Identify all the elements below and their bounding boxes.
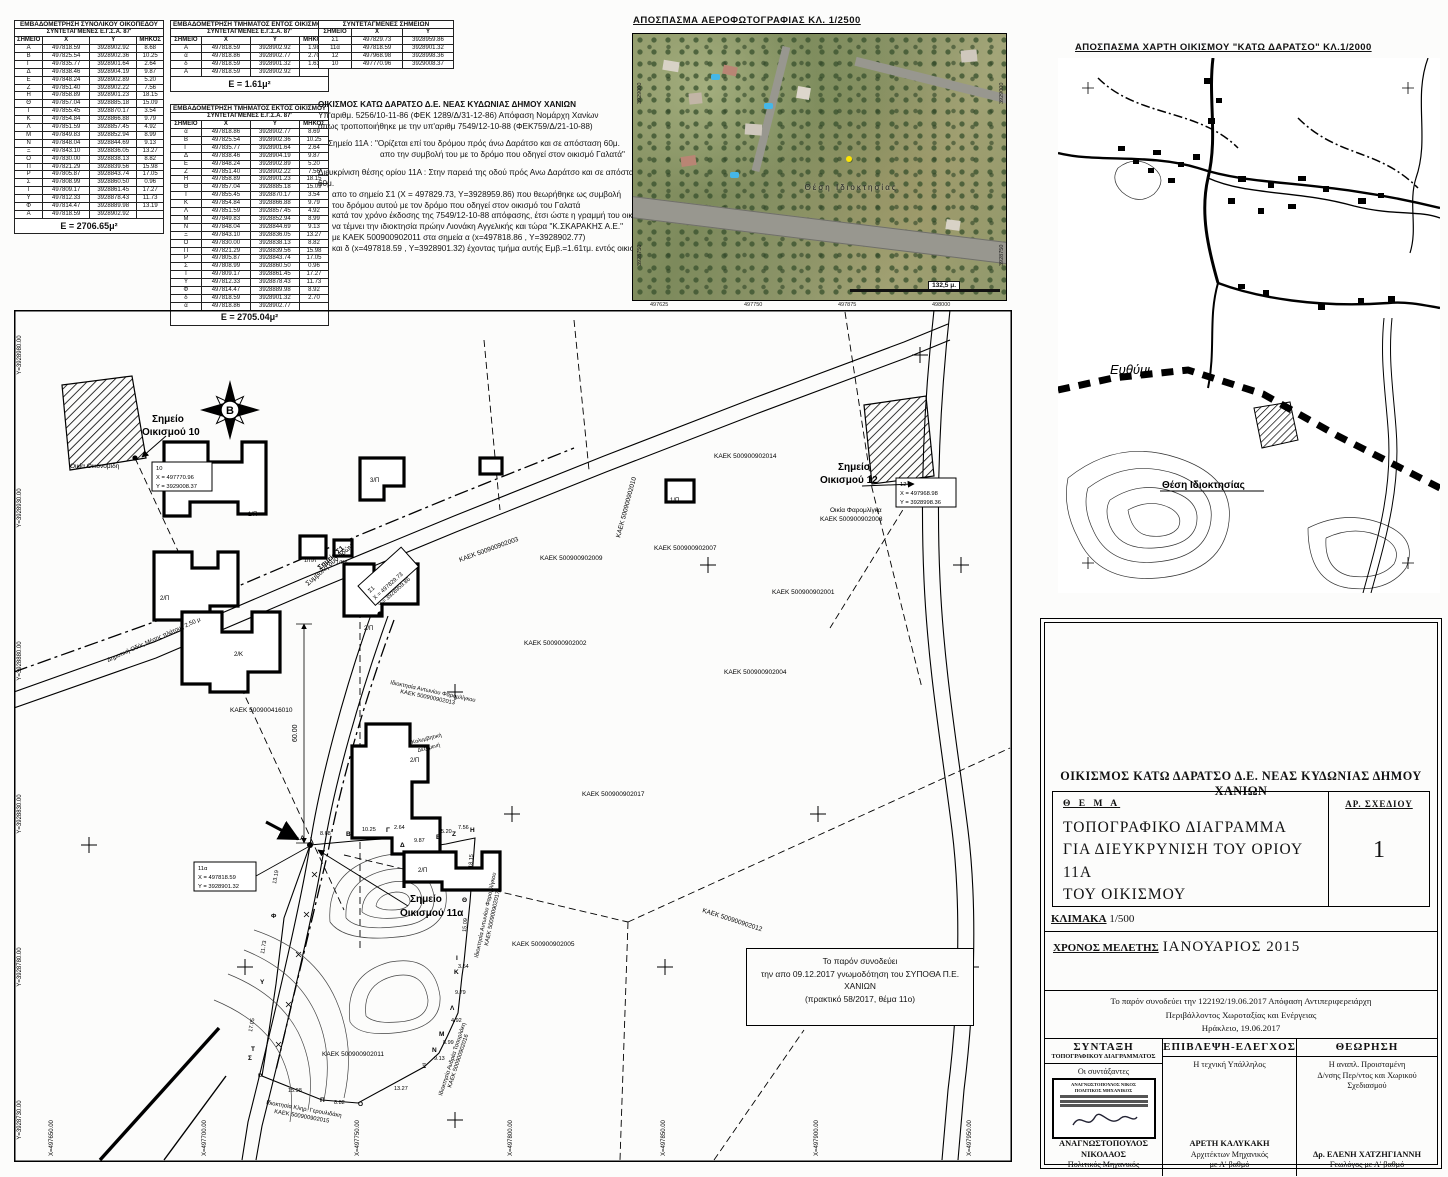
building	[961, 49, 978, 62]
kaek-label: ΚΑΕΚ 500900902004	[724, 669, 787, 676]
sig-title: Γεωλόγος με Α' βαθμό	[1313, 1160, 1421, 1171]
table-row: Α497818.593928902.921.98	[171, 45, 329, 53]
grid-y-label: Y=3928880.00	[17, 641, 23, 681]
table-row: Υ497812.333928878.4311.73	[171, 279, 329, 287]
note-line: την απο 09.12.2017 γνωμοδότηση του ΣΥΠΟΘ…	[747, 968, 973, 981]
table-row: Ν497848.043928844.699.13	[15, 139, 164, 147]
vertex-label: Ξ	[422, 1063, 426, 1070]
table-cell: 3928870.17	[250, 192, 299, 200]
grid-x-label: X=497750.00	[355, 1119, 361, 1156]
table-cell: 2.70	[299, 294, 328, 302]
table-cell: 8.68	[137, 45, 164, 53]
table-cell: 497770.96	[352, 60, 403, 68]
table-cell: Κ	[15, 116, 43, 124]
col-header: ΣΗΜΕΙΟ	[171, 37, 202, 45]
table-cell: 3928844.69	[90, 139, 137, 147]
col-header: ΣΗΜΕΙΟ	[15, 37, 43, 45]
table-cell: Γ	[171, 144, 202, 152]
storeys-label: 1/Π	[248, 512, 257, 518]
photo-coord: 3928750	[999, 245, 1005, 266]
table-subtitle: ΣΥΝΤΕΤΑΓΜΕΝΕΣ Ε.Γ.Σ.Α. 87'	[15, 29, 164, 37]
storeys-label: 2/Π	[410, 758, 419, 764]
vertex-label: Μ	[439, 1031, 444, 1038]
table-cell: 497851.59	[201, 208, 250, 216]
point12-label: Σημείο	[838, 462, 870, 473]
table-cell: Β	[15, 53, 43, 61]
table-row: Σ1497829.733928959.86	[319, 37, 454, 45]
title-block-inner: ΟΙΚΙΣΜΟΣ ΚΑΤΩ ΔΑΡΑΤΣΟ Δ.Ε. ΝΕΑΣ ΚΥΔΩΝΙΑΣ…	[1044, 622, 1438, 1165]
distance-label: 3.54	[458, 964, 469, 970]
grid-y-label: Y=3928930.00	[17, 488, 23, 528]
title-block: ΟΙΚΙΣΜΟΣ ΚΑΤΩ ΔΑΡΑΤΣΟ Δ.Ε. ΝΕΑΣ ΚΥΔΩΝΙΑΣ…	[1040, 618, 1442, 1169]
table-cell: 497855.45	[201, 192, 250, 200]
point12-box-text: X = 497968.98	[900, 491, 938, 497]
table-cell: Ε	[15, 76, 43, 84]
table-cell: 15.98	[137, 163, 164, 171]
grid-x-label: X=497700.00	[202, 1119, 208, 1156]
table-row: α497818.863928902.778.69	[171, 129, 329, 137]
building	[946, 219, 961, 231]
table-cell: 3929008.37	[403, 60, 454, 68]
table-cell: Π	[171, 247, 202, 255]
table-cell: 3928901.23	[250, 176, 299, 184]
distance-label: 9.87	[414, 838, 425, 844]
table-cell	[299, 68, 328, 76]
village-label: Ευθύμι	[1110, 362, 1150, 377]
distance-label: 8.68	[320, 831, 331, 837]
point10-box-text: Y = 3929008.37	[156, 484, 197, 490]
table-cell: 3928878.43	[90, 195, 137, 203]
distance-label: 2.64	[394, 825, 405, 831]
table-cell: 497809.17	[201, 271, 250, 279]
table-row: Ξ497843.103928836.0513.27	[171, 231, 329, 239]
table-cell	[137, 210, 164, 218]
table-cell: Ι	[171, 192, 202, 200]
table-cell: 497830.00	[201, 239, 250, 247]
sig-name: Δρ. ΕΛΕΝΗ ΧΑΤΖΗΓΙΑΝΝΗ	[1313, 1150, 1421, 1161]
table-cell: Θ	[171, 184, 202, 192]
note-line: (πρακτικό 58/2017, θέμα 11ο)	[747, 993, 973, 1006]
table-cell: 3928838.13	[250, 239, 299, 247]
table-cell: Ρ	[15, 171, 43, 179]
sig-header: ΣΥΝΤΑΞΗ	[1045, 1041, 1162, 1053]
accompany-box: Το παρόν συνοδεύει την 122192/19.06.2017…	[1045, 991, 1437, 1039]
table-cell: Ν	[15, 139, 43, 147]
table-cell: Ν	[171, 223, 202, 231]
sig-title: Πολιτικός Μηχανικός	[1047, 1160, 1160, 1171]
table-row: Β497825.543928902.3610.25	[171, 137, 329, 145]
distance-label: 13.19	[272, 870, 280, 885]
grid-x-label: X=497800.00	[508, 1119, 514, 1156]
kaek-label: ΚΑΕΚ 500900902017	[582, 791, 645, 798]
table-cell	[299, 302, 328, 310]
table-cell: 3928836.05	[250, 231, 299, 239]
vertex-label: Β	[346, 831, 351, 838]
storeys-label: 1/ΚΛ	[336, 560, 348, 566]
point10-label: Οικισμού 10	[142, 427, 200, 438]
table-cell: Ζ	[171, 168, 202, 176]
table-cell: Σ	[15, 179, 43, 187]
table-cell: Δ	[15, 68, 43, 76]
table-cell: 3928843.74	[250, 255, 299, 263]
table-cell: 5.20	[137, 76, 164, 84]
table-row: Υ497812.333928878.4311.73	[15, 195, 164, 203]
table-cell: 497848.24	[201, 160, 250, 168]
table-cell: 497857.04	[43, 100, 90, 108]
thema-main: Θ Ε Μ Α ΤΟΠΟΓΡΑΦΙΚΟ ΔΙΑΓΡΑΜΜΑ ΓΙΑ ΔΙΕΥΚΡ…	[1053, 792, 1329, 906]
table-cell: 3928902.36	[90, 53, 137, 61]
grid-y-label: Y=3928980.00	[17, 335, 23, 375]
table-title: ΕΜΒΑΔΟΜΕΤΡΗΣΗ ΤΜΗΜΑΤΟΣ ΕΝΤΟΣ ΟΙΚΙΣΜΟΥ	[171, 21, 329, 29]
table-row: Θ497857.043928885.1815.09	[171, 184, 329, 192]
distance-label: 8.82	[334, 1100, 345, 1106]
table-cell: 13.27	[137, 147, 164, 155]
table-cell: Α	[171, 68, 202, 76]
table-cell: 497848.04	[201, 223, 250, 231]
drawing-title-line: ΓΙΑ ΔΙΕΥΚΡΥΝΙΣΗ ΤΟΥ ΟΡΙΟΥ 11Α	[1063, 839, 1318, 884]
table-cell: 17.05	[299, 255, 328, 263]
scale-line: ΚΛΙΜΑΚΑ 1/500	[1051, 913, 1134, 925]
table-row: Φ497814.473928889.988.92	[171, 286, 329, 294]
table-cell: 3928902.92	[250, 68, 299, 76]
table-subtitle: ΣΥΝΤΕΤΑΓΜΕΝΕΣ Ε.Γ.Σ.Α. 87'	[171, 113, 329, 121]
table-cell: 497818.59	[201, 45, 250, 53]
table-row: Ρ497805.873928843.7417.05	[15, 171, 164, 179]
settlement-boundary	[14, 448, 574, 1070]
table-cell: 3928901.32	[250, 294, 299, 302]
table-cell: 18.15	[137, 92, 164, 100]
table-total-plot: ΕΜΒΑΔΟΜΕΤΡΗΣΗ ΣΥΝΟΛΙΚΟΥ ΟΙΚΟΠΕΔΟΥ ΣΥΝΤΕΤ…	[14, 20, 164, 234]
table-cell: 3928857.45	[250, 208, 299, 216]
sig-header: ΘΕΩΡΗΣΗ	[1297, 1041, 1437, 1053]
table-body: Σ1497829.733928959.8611α497818.593928901…	[319, 37, 454, 69]
sig-role: Η αναπλ. Προισταμένη	[1317, 1060, 1416, 1071]
table-subtitle: ΣΥΝΤΕΤΑΓΜΕΝΕΣ Ε.Γ.Σ.Α. 87'	[171, 29, 329, 37]
kaek-label: ΚΑΕΚ 500900902009	[540, 555, 603, 562]
table-cell: 2.64	[137, 60, 164, 68]
table-cell: 11α	[319, 45, 352, 53]
table-cell: 3928904.19	[90, 68, 137, 76]
table-row: Κ497854.843928866.889.79	[15, 116, 164, 124]
table-cell: 8.82	[137, 155, 164, 163]
pool	[711, 74, 720, 80]
scale-bar: 132,5 μ.	[850, 280, 1000, 292]
table-cell: 497838.46	[201, 152, 250, 160]
photo-coord: 3928750	[637, 245, 689, 266]
scale-value: 1/500	[1109, 913, 1134, 925]
signature-icon	[1069, 1109, 1139, 1131]
buildings	[154, 442, 694, 890]
north-label: B	[226, 405, 234, 417]
table-cell: 3928861.45	[90, 187, 137, 195]
table-cell: 3928866.88	[250, 200, 299, 208]
thema-box: Θ Ε Μ Α ΤΟΠΟΓΡΑΦΙΚΟ ΔΙΑΓΡΑΜΜΑ ΓΙΑ ΔΙΕΥΚΡ…	[1052, 791, 1430, 907]
table-cell: 3928857.45	[90, 124, 137, 132]
table-cell: δ	[171, 60, 202, 68]
storeys-label: 2/Π	[160, 596, 169, 602]
scale-bar-label: 132,5 μ.	[928, 281, 960, 290]
table-cell: Β	[171, 137, 202, 145]
distance-label: 15.09	[462, 918, 469, 932]
table-cell: Ι	[15, 108, 43, 116]
photo-coord: 498000	[932, 302, 950, 308]
table-cell: 3928889.98	[90, 202, 137, 210]
table-cell: 497821.29	[43, 163, 90, 171]
table-cell: Ε	[171, 160, 202, 168]
table-row: Π497821.293928839.5615.98	[171, 247, 329, 255]
site-plan-drawing: Y=3928980.00Y=3928930.00Y=3928880.00Y=39…	[14, 310, 1012, 1162]
grid-y-label: Y=3928730.00	[17, 1100, 23, 1140]
table-row: Π497821.293928839.5615.98	[15, 163, 164, 171]
site-marker	[846, 156, 852, 162]
table-cell: 3928843.74	[90, 171, 137, 179]
table-cell: 3928901.32	[403, 45, 454, 53]
table-cell: 3928860.50	[90, 179, 137, 187]
kaek-label: ΚΑΕΚ 500900902001	[772, 589, 835, 596]
table-row: δ497818.593928901.322.70	[171, 294, 329, 302]
table-cell: 497805.87	[43, 171, 90, 179]
signature-col-supervision: ΕΠΙΒΛΕΨΗ-ΕΛΕΓΧΟΣ Η τεχνική Υπάλληλος ΑΡΕ…	[1163, 1039, 1297, 1176]
drawing-sheet: ΕΜΒΑΔΟΜΕΤΡΗΣΗ ΣΥΝΟΛΙΚΟΥ ΟΙΚΟΠΕΔΟΥ ΣΥΝΤΕΤ…	[0, 0, 1448, 1177]
drawing-number-value: 1	[1329, 837, 1429, 864]
table-cell: 497808.99	[201, 263, 250, 271]
table-cell: 3928902.89	[250, 160, 299, 168]
stamp-illegible-line	[1060, 1104, 1148, 1107]
table-cell: Ρ	[171, 255, 202, 263]
point11a-box-text: Y = 3928901.32	[198, 884, 239, 890]
table-cell: Υ	[171, 279, 202, 287]
grid-x-label: X=497850.00	[661, 1119, 667, 1156]
point10-box-text: X = 497770.96	[156, 475, 194, 481]
table-cell: 3928839.56	[90, 163, 137, 171]
distance-label: 10.25	[362, 827, 376, 833]
table-cell: Α	[15, 45, 43, 53]
table-row: Α497818.593928902.92	[171, 68, 329, 76]
table-cell: 3928901.64	[90, 60, 137, 68]
col-header: Y	[90, 37, 137, 45]
drawing-number-label: ΑΡ. ΣΧΕΔΙΟΥ	[1329, 799, 1429, 809]
point11a-box-text: 11α	[198, 866, 208, 872]
table-cell: Π	[15, 163, 43, 171]
table-cell: 3928885.18	[250, 184, 299, 192]
table-cell: Α	[15, 210, 43, 218]
table-cell: 497855.45	[43, 108, 90, 116]
kaek-label: ΚΑΕΚ 500900902010	[615, 476, 638, 539]
area-total: E = 2706.65μ²	[15, 218, 164, 233]
stamp-illegible-line	[1060, 1095, 1148, 1098]
point11a-box-text: X = 497818.59	[198, 875, 236, 881]
table-cell: 497835.77	[43, 60, 90, 68]
col-header: Y	[250, 37, 299, 45]
table-outside-settlement: ΕΜΒΑΔΟΜΕΤΡΗΣΗ ΤΜΗΜΑΤΟΣ ΕΚΤΟΣ ΟΙΚΙΣΜΟΥ ΣΥ…	[170, 104, 329, 326]
table-cell: Ξ	[171, 231, 202, 239]
table-cell: 497812.33	[43, 195, 90, 203]
table-cell: 497818.86	[201, 53, 250, 61]
table-cell: Μ	[171, 215, 202, 223]
table-cell: Υ	[15, 195, 43, 203]
point10-box-text: 10	[156, 466, 162, 472]
table-cell: Η	[15, 92, 43, 100]
aerial-panel-title: ΑΠΟΣΠΑΣΜΑ ΑΕΡΟΦΩΤΟΓΡΑΦΙΑΣ ΚΛ. 1/2500	[633, 15, 861, 26]
point10-label: Σημείο	[152, 414, 184, 425]
note-line: ΧΑΝΙΩΝ	[747, 980, 973, 993]
table-row: Γ497835.773928901.642.64	[171, 144, 329, 152]
grid-x-label: X=497900.00	[814, 1119, 820, 1156]
note-line: να τέμνει την ιδιοκτησία πρώην Λιονάκη Α…	[332, 222, 658, 233]
distance-label: 9.13	[434, 1056, 445, 1062]
note-line: του δρόμου αυτού με τον δρόμο που οδηγεί…	[332, 201, 658, 212]
storeys-label: 2/Π	[418, 868, 427, 874]
signature-grid: ΣΥΝΤΑΞΗ ΤΟΠΟΓΡΑΦΙΚΟΥ ΔΙΑΓΡΑΜΜΑΤΟΣ Οι συν…	[1045, 1039, 1437, 1164]
table-row: Σ497808.993928860.500.96	[171, 263, 329, 271]
table-row: Α497818.593928902.928.68	[15, 45, 164, 53]
photo-coord: 3929000	[999, 79, 1005, 104]
table-row: Ε497848.243928902.895.20	[171, 160, 329, 168]
vertex-label: Π	[320, 1097, 325, 1104]
table-cell: 497854.84	[43, 116, 90, 124]
fence-marks	[276, 872, 317, 1047]
table-cell: 3928904.19	[250, 152, 299, 160]
building	[796, 86, 811, 100]
table-cell: 9.79	[137, 116, 164, 124]
table-cell: 3928902.77	[250, 129, 299, 137]
site-label: Θέση Ιδιοκτησίας	[805, 183, 898, 192]
photo-coord: 497750	[744, 302, 762, 308]
table-cell: 497818.59	[201, 68, 250, 76]
note-line: απο το σημείο Σ1 (Χ = 497829.73, Υ=39289…	[332, 190, 658, 201]
kaek-label: ΚΑΕΚ 500900902005	[512, 941, 575, 948]
storeys-label: 1/Π	[670, 498, 679, 504]
table-row: Μ497849.833928852.948.99	[171, 215, 329, 223]
table-row: Ο497830.003928838.138.82	[15, 155, 164, 163]
area-inside: E = 1.61μ²	[171, 76, 329, 91]
vertex-label: Γ	[386, 827, 390, 834]
point12-box-text: 12	[900, 482, 906, 488]
distance-label: 7.56	[458, 825, 469, 831]
note-line: κατά τον χρόνο έκδοσης της 7549/12-10-88…	[332, 211, 658, 222]
sig-title: με Α' βαθμό	[1189, 1160, 1269, 1171]
house-label: Οικία Φαρομλίγκα	[830, 506, 882, 514]
table-cell: 9.13	[137, 139, 164, 147]
table-cell: Μ	[15, 131, 43, 139]
table-cell: 497968.98	[352, 53, 403, 61]
table-row: Β497825.543928902.3610.25	[15, 53, 164, 61]
table-row: Ο497830.003928838.138.82	[171, 239, 329, 247]
accompany-line: Το παρόν συνοδεύει την 122192/19.06.2017…	[1045, 995, 1437, 1009]
table-cell: Τ	[171, 271, 202, 279]
table-row: Ν497848.043928844.699.13	[171, 223, 329, 231]
table-cell: Λ	[171, 208, 202, 216]
settlement-map: Ευθύμι Θέση Ιδιοκτησίας	[1058, 58, 1440, 593]
storeys-label: 2/Π	[364, 626, 373, 632]
table-cell: 497851.59	[43, 124, 90, 132]
pool	[764, 103, 773, 109]
table-cell: 497825.54	[43, 53, 90, 61]
table-cell: Σ	[171, 263, 202, 271]
scale-bar-line	[850, 289, 1000, 292]
table-cell: 3.54	[137, 108, 164, 116]
table-cell: 10	[319, 60, 352, 68]
sig-title: Αρχιτέκτων Μηχανικός	[1189, 1150, 1269, 1161]
table-cell: Α	[171, 45, 202, 53]
table-cell: 15.09	[137, 100, 164, 108]
table-row: Δ497838.463928904.199.87	[15, 68, 164, 76]
table-cell: 3928902.92	[90, 210, 137, 218]
table-cell: 497805.87	[201, 255, 250, 263]
table-row: 12497968.983928998.36	[319, 53, 454, 61]
table-cell: 3928902.22	[90, 84, 137, 92]
table-row: Ι497855.453928870.173.54	[15, 108, 164, 116]
kaek-label: ΚΑΕΚ 500900902002	[524, 640, 587, 647]
photo-coord: 497625	[650, 302, 668, 308]
table-row: Ξ497843.103928836.0513.27	[15, 147, 164, 155]
table-row: α497818.863928902.772.70	[171, 53, 329, 61]
table-cell: 497825.54	[201, 137, 250, 145]
map-panel-title: ΑΠΟΣΠΑΣΜΑ ΧΑΡΤΗ ΟΙΚΙΣΜΟΥ "ΚΑΤΩ ΔΑΡΑΤΣΟ" …	[1075, 42, 1372, 53]
table-cell: 497848.04	[43, 139, 90, 147]
table-cell: 3928901.64	[250, 144, 299, 152]
distance-label: 17.05	[248, 1018, 256, 1033]
vertex-label: Α	[300, 835, 305, 842]
table-row: Η497858.893928901.2318.15	[15, 92, 164, 100]
vertex-label: Ι	[456, 955, 458, 962]
drawing-title-line: ΤΟΥ ΟΙΚΙΣΜΟΥ	[1063, 884, 1318, 906]
stamp-illegible-line	[1060, 1100, 1148, 1103]
sig-name: ΑΡΕΤΗ ΚΑΛΥΚΑΚΗ	[1189, 1139, 1269, 1150]
note-line: και δ (x=497818.59 , Υ=3928901.32) έχοντ…	[332, 244, 658, 255]
table-body: α497818.863928902.778.69Β497825.54392890…	[171, 129, 329, 310]
property-hatch	[1254, 402, 1298, 448]
vertex-label: Θ	[462, 897, 467, 904]
table-cell: 3928901.32	[250, 60, 299, 68]
table-row: Ζ497851.403928902.227.56	[15, 84, 164, 92]
table-cell: 497814.47	[201, 286, 250, 294]
table-cell: α	[171, 302, 202, 310]
distance-label: 11.73	[260, 940, 268, 954]
grid-x-label: X=497650.00	[49, 1119, 55, 1156]
table-cell: 497818.86	[201, 129, 250, 137]
table-cell: 3928998.36	[403, 53, 454, 61]
stamp-line: ΠΟΛΙΤΙΚΟΣ ΜΗΧΑΝΙΚΟΣ	[1056, 1088, 1152, 1094]
table-cell: 497843.10	[201, 231, 250, 239]
plan-frame	[15, 311, 1012, 1162]
study-time-box: ΧΡΟΝΟΣ ΜΕΛΕΤΗΣ ΙΑΝΟΥΑΡΙΟΣ 2015	[1045, 931, 1437, 991]
study-time-value: ΙΑΝΟΥΑΡΙΟΣ 2015	[1163, 939, 1301, 955]
sig-header: ΕΠΙΒΛΕΨΗ-ΕΛΕΓΧΟΣ	[1163, 1041, 1296, 1053]
vertex-label: Σ	[248, 1055, 252, 1062]
col-header: X	[352, 29, 403, 37]
drawing-title-line: ΤΟΠΟΓΡΑΦΙΚΟ ΔΙΑΓΡΑΜΜΑ	[1063, 817, 1318, 839]
note-line: Διευκρίνιση θέσης ορίου 11Α : Στην παρει…	[318, 168, 658, 190]
table-cell: Ο	[171, 239, 202, 247]
point12-box-text: Y = 3928998.36	[900, 500, 941, 506]
table-row: Μ497849.833928852.948.99	[15, 131, 164, 139]
table-cell: 3928902.36	[250, 137, 299, 145]
table-body: Α497818.593928902.928.68Β497825.54392890…	[15, 45, 164, 219]
table-cell: 497821.29	[201, 247, 250, 255]
table-cell: 11.73	[299, 279, 328, 287]
accompany-line: Περιβάλλοντος Χωροταξίας και Ενέργειας	[1045, 1009, 1437, 1023]
storeys-label: 3/Π	[370, 478, 379, 484]
kaek-label: ΚΑΕΚ 500900902003	[458, 536, 520, 564]
table-cell: 3928861.45	[250, 271, 299, 279]
signature-col-approval: ΘΕΩΡΗΣΗ Η αναπλ. Προισταμένη Δ/νσης Περ/…	[1297, 1039, 1437, 1176]
vertex-label: Δ	[400, 842, 405, 849]
table-cell: Ξ	[15, 147, 43, 155]
grid-y-label: Y=3928830.00	[17, 794, 23, 834]
table-cell: 497849.83	[43, 131, 90, 139]
parcel-point10-hatch	[62, 376, 146, 470]
